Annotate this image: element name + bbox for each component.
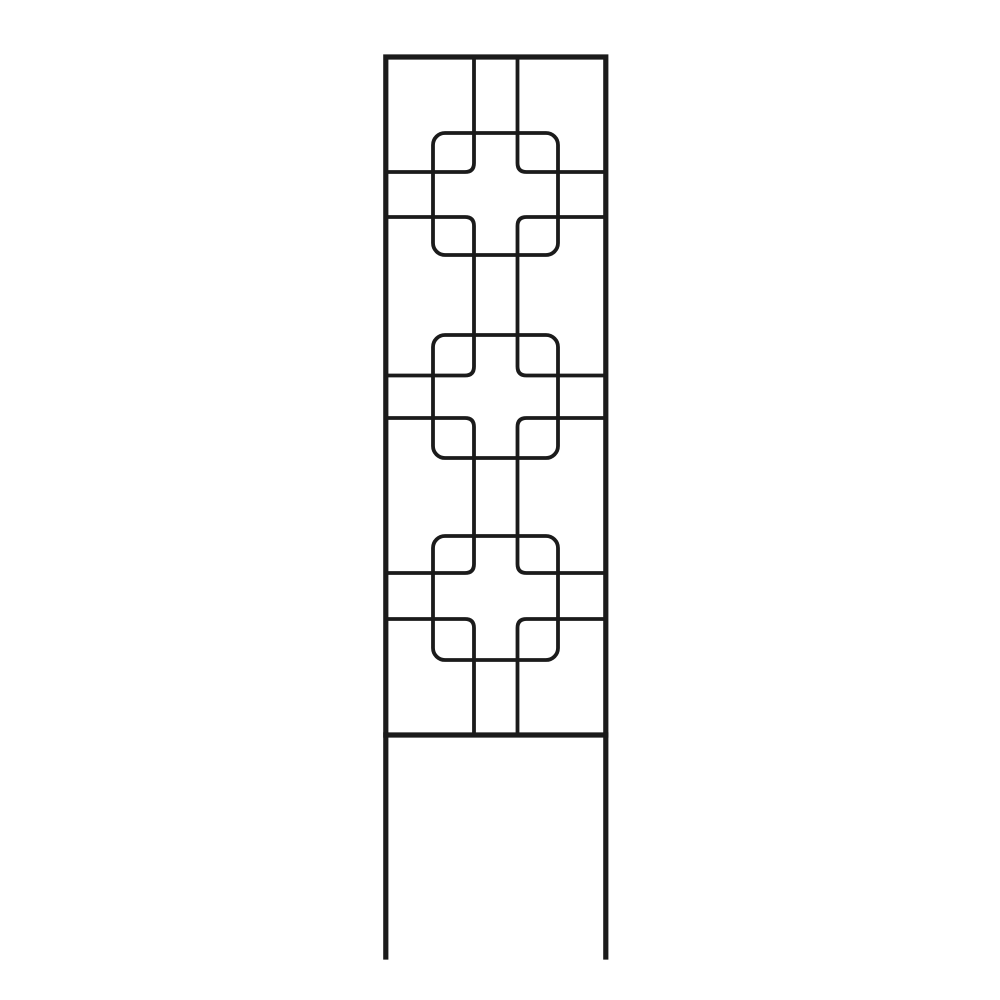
photo-background: [0, 0, 1000, 1000]
product-photo-canvas: [0, 0, 1000, 1000]
trellis-image: [0, 0, 1000, 1000]
